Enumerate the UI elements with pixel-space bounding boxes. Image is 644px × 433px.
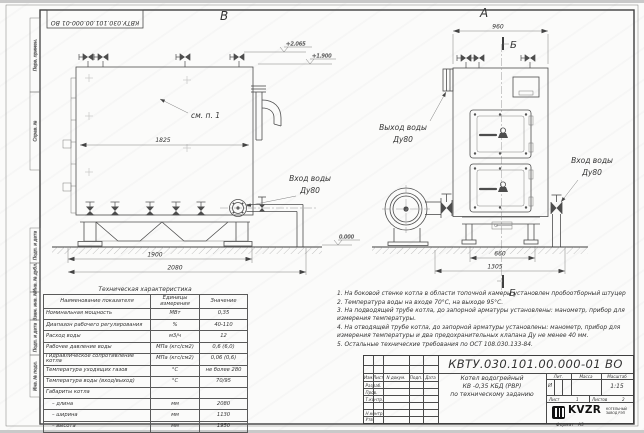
margin-field-perv-primen: Перв. примен. <box>33 39 39 71</box>
row-name: Расход воды <box>44 331 151 342</box>
tb-col-ndokum: N докум. <box>383 375 409 380</box>
row-units: м3/ч <box>151 331 200 342</box>
row-units: мм <box>151 421 200 432</box>
row-units <box>151 388 200 399</box>
tb-mass-header: Масса <box>571 374 601 379</box>
callouts: см. п. 1 Вход воды Ду80 Выход воды Ду80 … <box>160 37 613 299</box>
table-row: Номинальная мощностьМВт0,35 <box>44 309 248 320</box>
row-value: не более 280 <box>200 365 248 376</box>
tb-lit-header: Лит. <box>546 374 571 379</box>
tb-divider <box>364 365 438 366</box>
format-label: Формат А3 <box>556 423 636 428</box>
corner-stamp: КВТУ.030.101.00.000-01 ВО <box>47 10 143 28</box>
corner-stamp-number: КВТУ.030.101.00.000-01 ВО <box>51 19 140 26</box>
table-row: – высотамм1950 <box>44 421 248 432</box>
valve-icon <box>230 54 244 68</box>
row-units: °С <box>151 376 200 387</box>
tb-divider <box>589 395 590 402</box>
table-row: – длинамм2080 <box>44 399 248 410</box>
inlet-label-front: Вход воды <box>289 174 331 183</box>
title-block: КВТУ.030.101.00.000-01 ВО Изм. Лист N до… <box>363 355 634 424</box>
valve-icon <box>79 54 93 68</box>
tb-divider <box>562 379 563 395</box>
side-inlet-valve <box>551 195 562 247</box>
dimensions: 1825 1900 2080 960 660 1305 <box>68 24 565 276</box>
ground-front <box>52 247 322 254</box>
table-row: Рабочее давление водыМПа (кгс/см2)0,6 (6… <box>44 342 248 353</box>
dim-1900: 1900 <box>147 252 162 259</box>
kvzr-logo-subtext: КОТЕЛЬНЫЙ ЗАВОД РЭП <box>606 407 627 415</box>
row-value: 70/95 <box>200 376 248 387</box>
fan-valve <box>441 194 452 218</box>
table-row: Габариты котла <box>44 388 248 399</box>
row-name: Рабочее давление воды <box>44 342 151 353</box>
kvzr-logo-subline: КОТЕЛЬНЫЙ <box>606 407 627 411</box>
row-name: – ширина <box>44 410 151 421</box>
tb-sheet-label: Лист <box>549 397 559 402</box>
valve-icon <box>111 202 120 215</box>
product-name-line: по техническому заданию <box>438 391 546 399</box>
tech-characteristics: Техническая характеристика Наименование … <box>43 286 247 433</box>
blower-fan <box>382 185 441 246</box>
product-name-line: КВ -0,35 КБД (РВР) <box>438 383 546 391</box>
inlet-dn-front: Ду80 <box>299 186 320 195</box>
view-label-b: В <box>220 9 228 23</box>
valve-icon <box>94 54 108 68</box>
valve-icon <box>521 55 535 69</box>
manufacturer-logo: KVZR КОТЕЛЬНЫЙ ЗАВОД РЭП <box>546 403 633 422</box>
row-value: 12 <box>200 331 248 342</box>
technical-notes: 1. На боковой стенке котла в области топ… <box>337 290 632 349</box>
side-support-frame <box>462 217 540 244</box>
tb-scale-header: Масштаб <box>601 374 633 379</box>
tb-row-tkontr: Т.контр. <box>366 397 384 402</box>
row-units: МПа (кгс/см2) <box>151 342 200 353</box>
dim-960: 960 <box>492 24 504 31</box>
note-2: 2. Температура воды на входе 70°С, на вы… <box>337 299 632 307</box>
tb-sheets-label: Листов <box>592 397 607 402</box>
valve-icon <box>86 202 95 215</box>
margin-fields: Перв. примен. Справ. № Подп. и дата Инв.… <box>30 18 40 397</box>
elevation-marks: +2.065 +1.900 0.000 <box>244 42 360 246</box>
row-name: – высота <box>44 421 151 432</box>
row-name: Габариты котла <box>44 388 151 399</box>
note-4: 4. На отводящей трубе котла, до запорной… <box>337 324 632 340</box>
row-units: мм <box>151 410 200 421</box>
tb-col-list: Лист <box>373 375 383 380</box>
valve-icon <box>172 202 181 215</box>
col-header-units: Единицы измерения <box>151 295 200 309</box>
row-name: Температура уходящих газов <box>44 365 151 376</box>
elevation-mid: +1.900 <box>312 54 332 60</box>
row-value: 0,6 (6,0) <box>200 342 248 353</box>
margin-field-inv-dubl: Инв. № дубл. <box>33 263 39 292</box>
row-value: 40-110 <box>200 320 248 331</box>
tb-row-utv: Утв. <box>366 417 375 422</box>
tb-row-razrab: Разраб. <box>366 383 382 388</box>
valve-icon <box>197 202 206 215</box>
elevation-ground: 0.000 <box>339 235 355 241</box>
outlet-dn: Ду80 <box>392 135 413 144</box>
kvzr-logo-text: KVZR <box>568 404 601 416</box>
margin-field-podp-data-2: Подп. и дата <box>33 323 39 353</box>
tb-col-izm: Изм. <box>364 375 373 380</box>
format-word: Формат <box>556 423 574 428</box>
ground-side <box>372 247 588 254</box>
format-value: А3 <box>578 423 584 428</box>
inlet-dn-side: Ду80 <box>581 168 602 177</box>
table-row: Расход водым3/ч12 <box>44 331 248 342</box>
outlet-flange <box>443 69 453 91</box>
margin-field-inv-podl: Инв. № подл. <box>33 361 39 391</box>
table-row: – ширинамм1130 <box>44 410 248 421</box>
row-name: Температура воды (вход/выход) <box>44 376 151 387</box>
row-units: мм <box>151 399 200 410</box>
tb-sheet-value: 1 <box>576 397 579 402</box>
product-name-line: Котел водогрейный <box>438 375 546 383</box>
tb-divider <box>364 402 438 403</box>
col-header-name: Наименование показателя <box>44 295 151 309</box>
tb-row-prov: Пров. <box>366 390 378 395</box>
dim-660: 660 <box>494 251 506 258</box>
tb-divider <box>546 379 633 380</box>
valve-icon <box>457 55 471 69</box>
note-3: 3. На подводящей трубе котла, до запорно… <box>337 307 632 323</box>
outlet-label: Выход воды <box>379 123 427 132</box>
row-value: 2080 <box>200 399 248 410</box>
tech-table-title: Техническая характеристика <box>43 286 247 293</box>
row-units: МПа (кгс/см2) <box>151 353 200 365</box>
tb-lit-value: И <box>546 383 554 389</box>
row-value: 0,35 <box>200 309 248 320</box>
note-1: 1. На боковой стенке котла в области топ… <box>337 290 632 298</box>
row-value <box>200 388 248 399</box>
margin-field-sprav-no: Справ. № <box>33 120 39 141</box>
kvzr-logo-icon <box>552 406 565 419</box>
elevation-top: +2.065 <box>286 42 306 48</box>
dim-1825: 1825 <box>155 137 170 144</box>
doc-number: КВТУ.030.101.00.000-01 ВО <box>438 356 633 373</box>
front-support-frame <box>78 222 252 246</box>
table-row: Температура воды (вход/выход)°С70/95 <box>44 376 248 387</box>
product-name: Котел водогрейный КВ -0,35 КБД (РВР) по … <box>438 375 546 399</box>
dim-2080: 2080 <box>167 265 182 272</box>
table-row: Температура уходящих газов°Сне более 280 <box>44 365 248 376</box>
view-label-a: А <box>479 6 488 20</box>
kvzr-logo-subline: ЗАВОД РЭП <box>606 411 627 415</box>
valve-icon <box>146 202 155 215</box>
row-units: МВт <box>151 309 200 320</box>
dim-1305: 1305 <box>487 264 502 271</box>
valve-icon <box>470 55 484 69</box>
table-row: Диапазон рабочего регулирования%40-110 <box>44 320 248 331</box>
table-header-row: Наименование показателя Единицы измерени… <box>44 295 248 309</box>
tb-divider <box>554 379 555 395</box>
row-units: °С <box>151 365 200 376</box>
margin-field-vzam-inv: Взам. инв. № <box>33 291 39 321</box>
margin-field-podp-data-1: Подп. и дата <box>33 231 39 261</box>
tb-col-data: Дата <box>423 375 438 380</box>
table-row: Гидравлическое сопротивление котлаМПа (к… <box>44 353 248 365</box>
row-name: Номинальная мощность <box>44 309 151 320</box>
row-name: – длина <box>44 399 151 410</box>
row-value: 1950 <box>200 421 248 432</box>
inlet-label-side: Вход воды <box>571 156 613 165</box>
tb-row-nkontr: Н.контр. <box>366 411 384 416</box>
front-view <box>63 54 318 248</box>
tb-divider <box>423 356 424 423</box>
row-name: Диапазон рабочего регулирования <box>44 320 151 331</box>
col-header-value: Значение <box>200 295 248 309</box>
see-note-label: см. п. 1 <box>191 111 220 120</box>
row-name: Гидравлическое сопротивление котла <box>44 353 151 365</box>
section-label-top: Б <box>510 40 517 51</box>
tb-scale-value: 1:15 <box>601 383 633 390</box>
tb-divider <box>364 416 438 417</box>
tb-divider <box>409 356 410 423</box>
row-value: 1130 <box>200 410 248 421</box>
tb-col-podp: Подп. <box>409 375 423 380</box>
row-value: 0,06 (0,6) <box>200 353 248 365</box>
tb-sheets-value: 2 <box>622 397 625 402</box>
row-units: % <box>151 320 200 331</box>
valve-icon <box>176 54 190 68</box>
note-5: 5. Остальные технические требования по О… <box>337 341 632 349</box>
